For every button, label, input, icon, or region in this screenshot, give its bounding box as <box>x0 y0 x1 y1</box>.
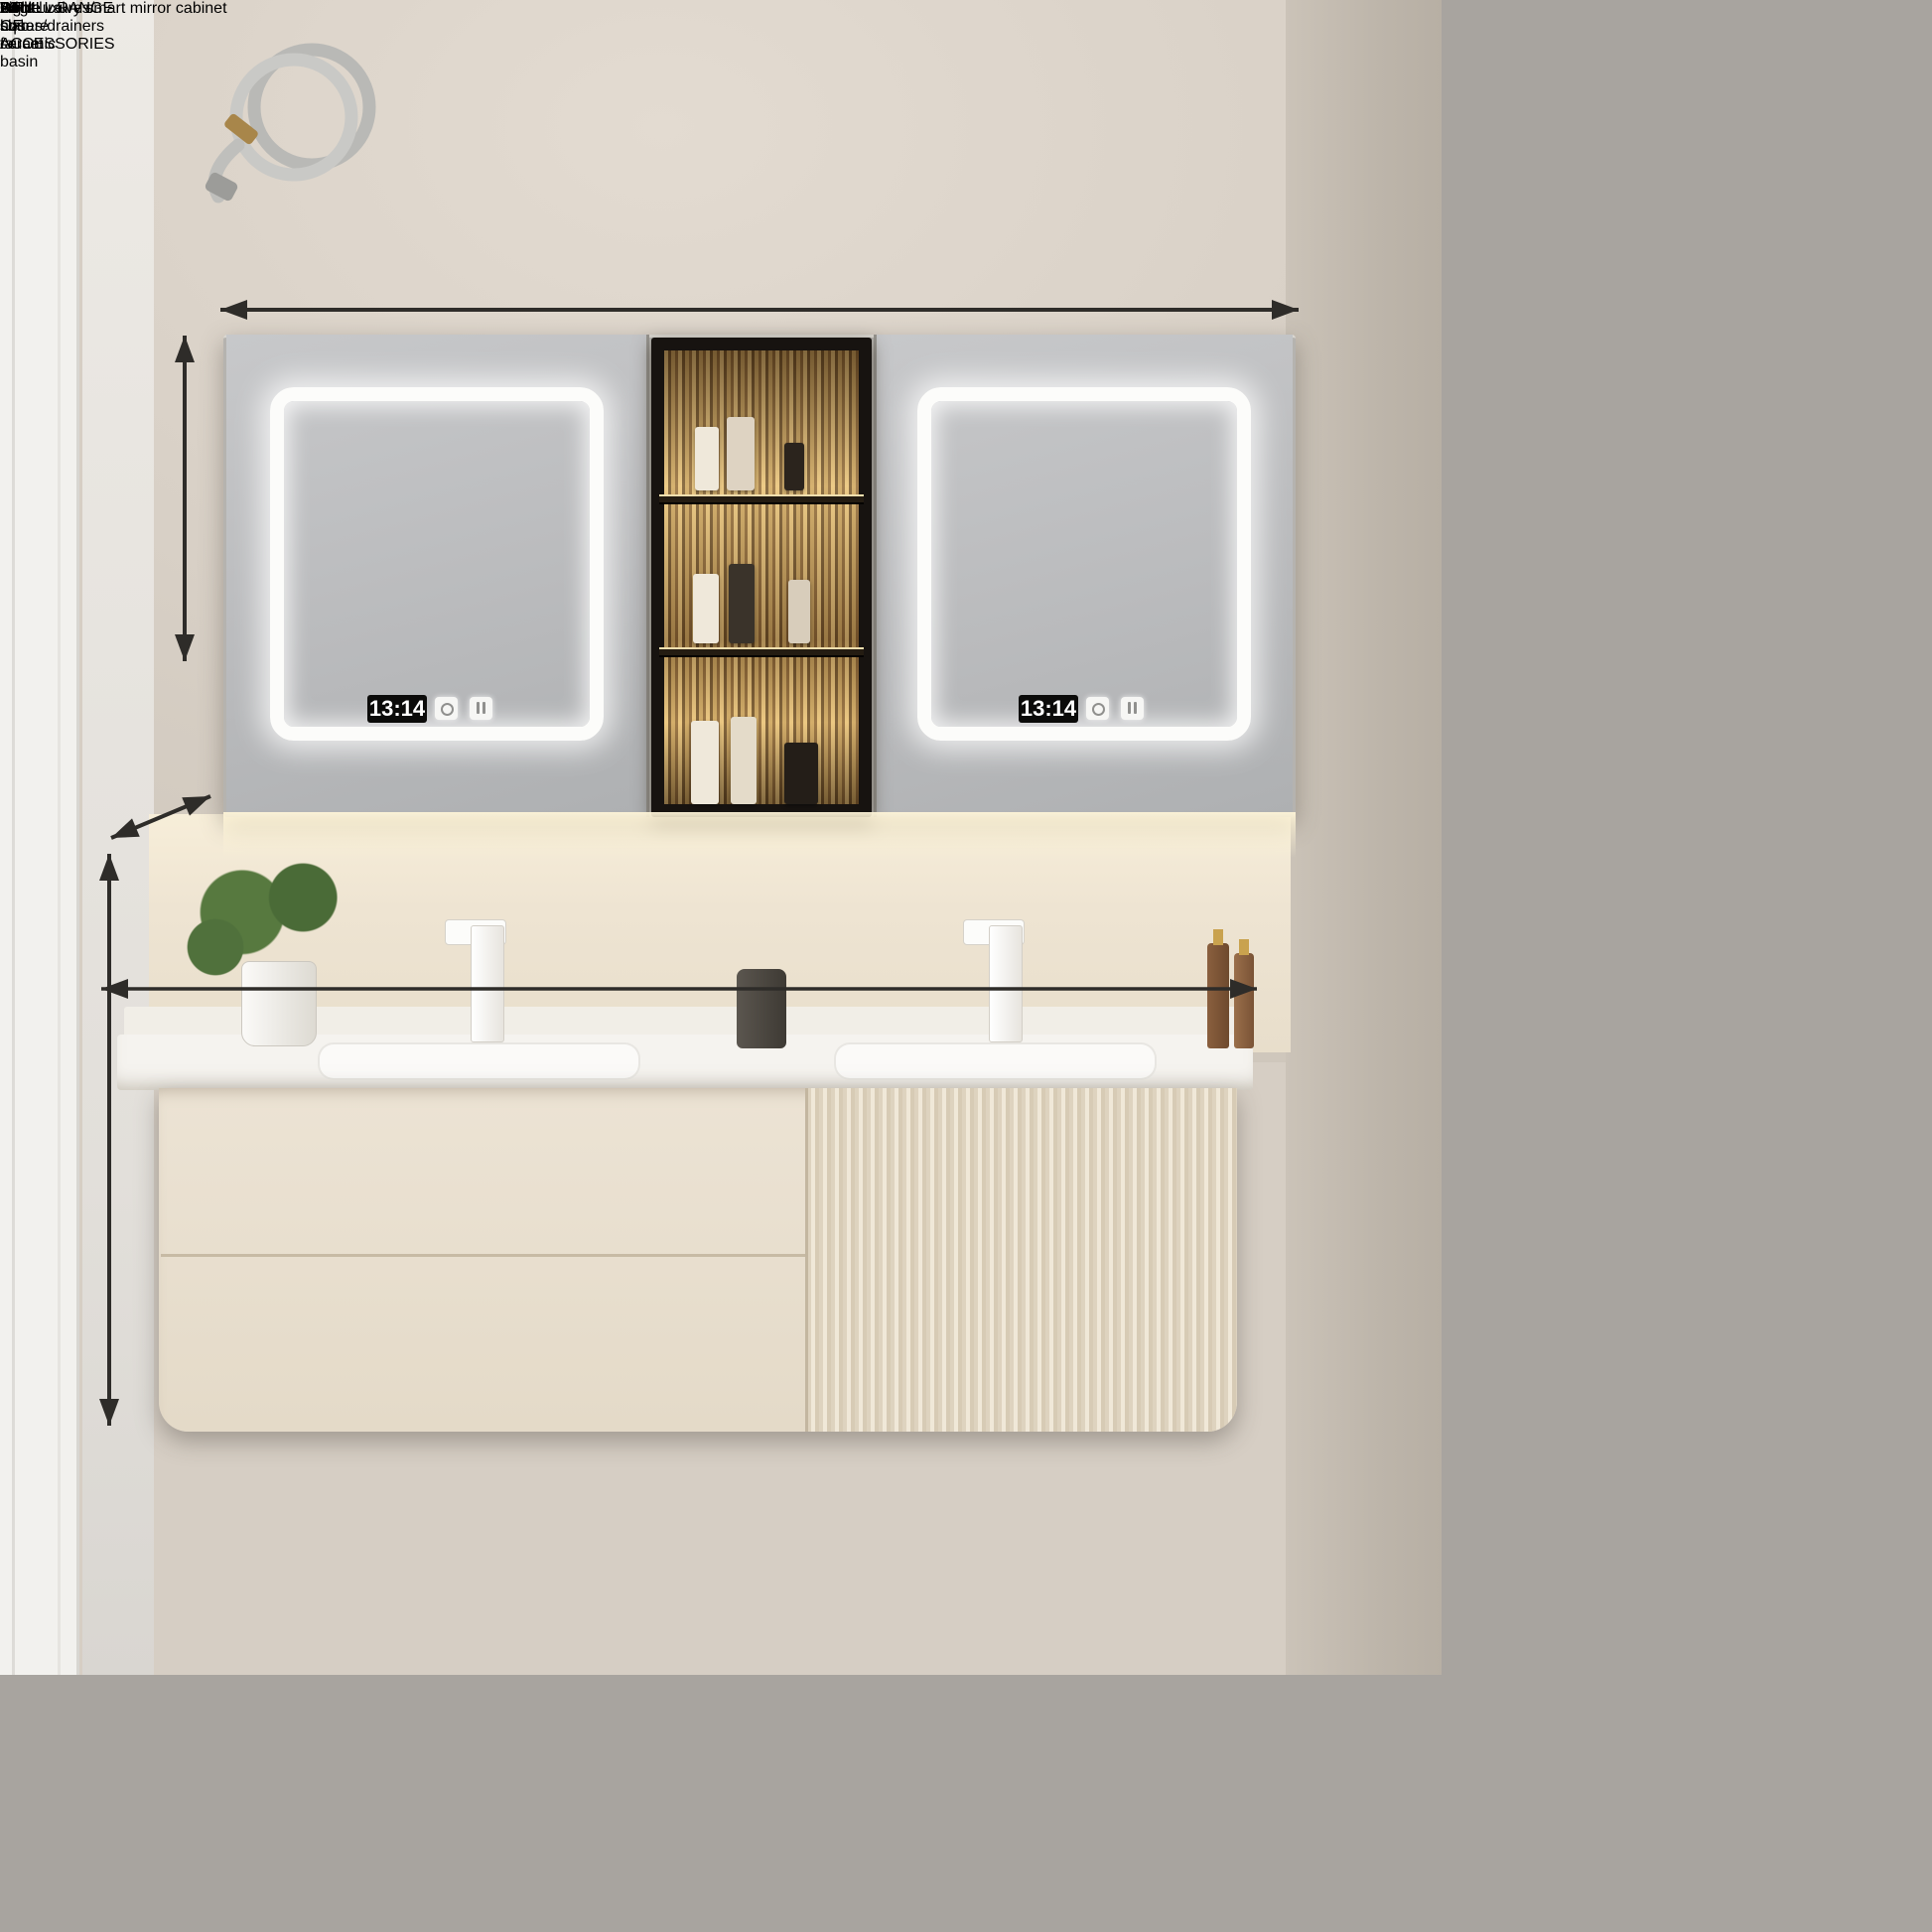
angle-valve-red <box>52 44 171 203</box>
product-infographic: 13:14 13:14 <box>0 0 1932 1932</box>
dimension-arrows <box>0 0 1442 1675</box>
braided-hose <box>195 26 403 214</box>
angle-valve-blue <box>44 212 163 375</box>
bathroom-photo: 13:14 13:14 <box>0 0 1442 1675</box>
accessory-label-basin: Rock slab ceramic basin <box>0 0 56 71</box>
